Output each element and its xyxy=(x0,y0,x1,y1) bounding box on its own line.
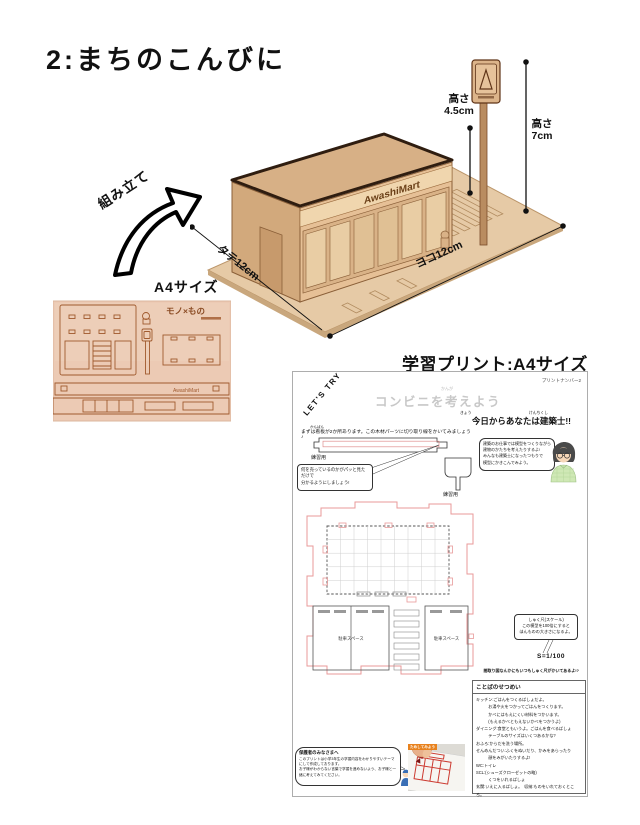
parking-label: 駐車スペース xyxy=(434,635,459,642)
sheet-logo: モノ×もの xyxy=(166,306,205,316)
dim-label: 高さ xyxy=(520,119,564,131)
dimension-height-canopy: 高さ 4.5cm xyxy=(434,94,484,118)
speech-bubble-signage-tip: 何を売っているのかがパッと見ただけで 分かるようにしましょう! xyxy=(297,464,373,491)
dimension-height-signpole: 高さ 7cm xyxy=(520,119,564,143)
sheet-brand-engraving: AwashiMart xyxy=(173,388,200,394)
worksheet-page: プリントナンバー2 LET'S TRY コンビニを考えよう かんが 今日からあな… xyxy=(292,371,588,797)
glossary-box: ことばのせつめい キッチン:ごはんをつくるばしょだよ。 お湯や火をつかってごはん… xyxy=(472,680,586,794)
speech-bubble-architect-tip: 建築のお仕事では模型をつくりながら 建物のかたちを考えたりするよ! みんなも建築… xyxy=(479,438,555,471)
parents-note-title: 保護者のみなさまへ xyxy=(299,750,397,757)
parts-sheet-photo: モノ×もの xyxy=(53,299,231,423)
scale-value: S=1/100 xyxy=(521,653,581,660)
dim-value: 4.5cm xyxy=(434,106,484,118)
floorplan-diagram: 駐車スペース 駐車スペース xyxy=(301,496,479,678)
demo-photo-art xyxy=(408,744,465,791)
dim-label: 高さ xyxy=(434,94,484,106)
walkway-stripes xyxy=(394,610,419,670)
wheel-stops xyxy=(318,610,462,613)
scale-note: 間取り図なんかにもいつもしゅく尺がかいてあるよ!? xyxy=(421,668,579,674)
parking-label: 駐車スペース xyxy=(338,635,363,642)
demo-photo: ためしてみよう xyxy=(408,744,465,791)
bottom-connectors xyxy=(357,592,406,596)
dim-value: 7cm xyxy=(520,131,564,143)
grid-lines xyxy=(327,526,449,594)
model-photo: AwashiMart xyxy=(190,55,570,345)
parents-note-text: このプリントは小学3年生の学習内容をわかりやすいテーマにして作成しております。 … xyxy=(299,757,397,779)
glossary-title: ことばのせつめい xyxy=(473,681,585,694)
a4-size-label: A4サイズ xyxy=(154,277,218,297)
flyer-page: 2:まちのこんびに AwashiMart xyxy=(0,0,640,825)
scale-explainer-bubble: しゅく尺(スケール) この模型を100倍にすると ほんものの大きさになるよ。 xyxy=(514,614,578,640)
glossary-text: キッチン:ごはんをつくるばしょだよ。 お湯や火をつかってごはんをつくります。 か… xyxy=(473,694,585,800)
sheet-logo-subtext-mark xyxy=(201,317,221,320)
parents-note-bubble: 保護者のみなさまへ このプリントは小学3年生の学習内容をわかりやすいテーマにして… xyxy=(295,747,401,786)
architect-character xyxy=(546,441,581,483)
photo-tag: ためしてみよう xyxy=(408,744,437,750)
